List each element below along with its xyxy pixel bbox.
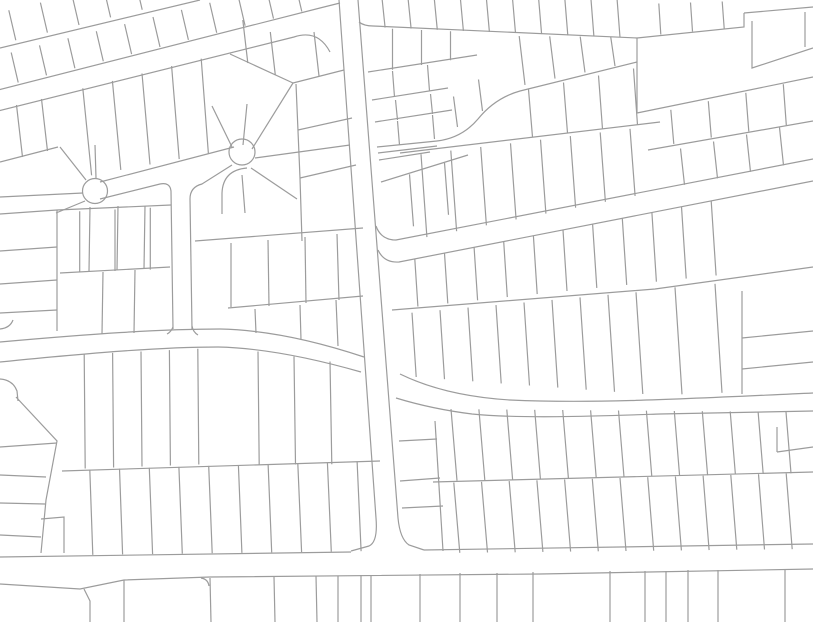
lot-divider-fan [84, 349, 199, 469]
map-line [230, 54, 293, 83]
map-line [377, 141, 437, 147]
map-line [0, 247, 57, 251]
map-line [0, 443, 57, 447]
map-line [337, 234, 339, 300]
map-line [300, 305, 301, 340]
map-line [0, 280, 57, 284]
map-line [400, 478, 440, 481]
lot-divider-fan [454, 473, 792, 552]
map-line [379, 152, 430, 160]
map-line [637, 77, 813, 113]
map-line [0, 193, 83, 197]
map-line [378, 181, 813, 262]
map-line [400, 122, 660, 153]
map-line [134, 270, 135, 333]
map-line [0, 310, 57, 313]
map-line [0, 329, 364, 357]
map-line [742, 362, 813, 369]
map-line [298, 118, 352, 130]
map-line [0, 320, 13, 329]
lot-divider-fan [671, 84, 787, 144]
map-line [752, 21, 813, 68]
map-line [296, 84, 302, 241]
map-line [0, 475, 46, 477]
map-line [402, 506, 443, 508]
map-line [0, 535, 41, 537]
map-line [195, 228, 363, 241]
lot-divider-fan [675, 284, 722, 395]
map-line [0, 569, 813, 589]
map-line [0, 210, 57, 214]
map-line [201, 578, 209, 586]
map-canvas[interactable] [0, 0, 813, 622]
map-line [433, 472, 813, 482]
map-line [0, 379, 18, 401]
map-line [637, 13, 744, 38]
map-line [190, 165, 232, 329]
map-line [316, 576, 317, 622]
map-line [336, 300, 338, 346]
map-line [0, 35, 330, 111]
map-line [192, 326, 198, 335]
map-line [392, 267, 813, 310]
map-line [372, 88, 448, 100]
map-line [228, 296, 363, 308]
map-line [359, 22, 637, 38]
map-line [56, 201, 85, 213]
map-line [400, 374, 813, 401]
map-line [0, 3, 340, 90]
lot-divider-fan [451, 409, 791, 481]
map-line [381, 155, 468, 182]
cul-de-sac-bulb-east [229, 139, 255, 165]
map-line [358, 0, 424, 550]
map-line [0, 503, 45, 504]
map-line [376, 159, 813, 240]
map-line [212, 106, 232, 147]
lot-divider-fan [421, 129, 635, 237]
map-line [0, 147, 58, 162]
parcel-map-svg [0, 0, 813, 622]
map-line [117, 206, 118, 270]
map-line [437, 62, 637, 141]
cul-de-sac-bulb-west [83, 179, 108, 204]
map-line [0, 552, 351, 557]
lot-divider-fan [393, 29, 451, 70]
map-line [0, 347, 361, 372]
map-line [300, 165, 356, 178]
map-line [255, 309, 256, 333]
map-line [144, 206, 145, 269]
map-line [255, 145, 350, 158]
lot-divider-fan [90, 461, 361, 555]
map-line [305, 237, 306, 303]
lot-divider-fan [681, 128, 784, 185]
map-line [744, 7, 813, 13]
lot-divider-fan [519, 36, 615, 85]
map-line [95, 145, 96, 178]
map-line [742, 331, 813, 338]
map-line [89, 207, 90, 271]
lot-divider-fan [11, 0, 302, 83]
map-line [399, 439, 437, 441]
map-line [102, 272, 103, 334]
lot-divider-fan [9, 0, 142, 40]
lot-divider-fan [410, 163, 449, 227]
lot-divider-fan [454, 80, 483, 128]
map-line [268, 240, 269, 306]
map-line [274, 577, 275, 622]
map-line [60, 147, 86, 180]
lot-divider-fan [83, 59, 209, 176]
lot-divider-fan [258, 352, 332, 465]
lot-divider-fan [17, 99, 48, 157]
map-line [0, 0, 200, 48]
map-line [210, 578, 211, 622]
lot-divider-fan [398, 115, 435, 145]
lot-divider-fan [415, 201, 716, 307]
map-line [435, 421, 443, 551]
map-line [16, 397, 57, 553]
map-line [777, 447, 813, 452]
map-line [252, 83, 293, 149]
map-line [242, 175, 245, 213]
map-line [375, 110, 452, 122]
map-line [251, 168, 297, 199]
map-line [424, 544, 813, 550]
lot-divider-fan [412, 292, 643, 394]
map-line [368, 55, 477, 72]
map-line [84, 589, 90, 622]
